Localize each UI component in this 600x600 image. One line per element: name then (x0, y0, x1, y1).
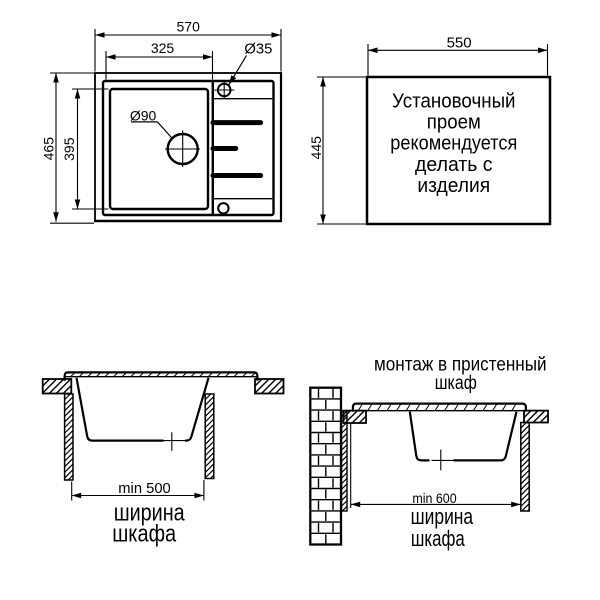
svg-text:550: 550 (447, 34, 472, 51)
svg-text:min 500: min 500 (118, 481, 171, 497)
svg-text:делать с: делать с (415, 154, 493, 176)
svg-text:445: 445 (308, 136, 324, 160)
svg-text:шкафа: шкафа (112, 520, 176, 547)
svg-text:465: 465 (41, 137, 57, 161)
svg-text:проем: проем (427, 112, 481, 134)
svg-text:шкаф: шкаф (435, 373, 477, 394)
svg-text:570: 570 (177, 19, 201, 35)
svg-text:рекомендуется: рекомендуется (390, 133, 517, 155)
svg-text:395: 395 (61, 137, 77, 161)
svg-text:Ø35: Ø35 (244, 42, 272, 58)
svg-text:шкафа: шкафа (411, 526, 465, 551)
svg-text:Ø90: Ø90 (130, 107, 157, 123)
svg-text:325: 325 (151, 40, 175, 56)
svg-text:Установочный: Установочный (392, 90, 516, 112)
svg-text:изделия: изделия (417, 175, 490, 197)
